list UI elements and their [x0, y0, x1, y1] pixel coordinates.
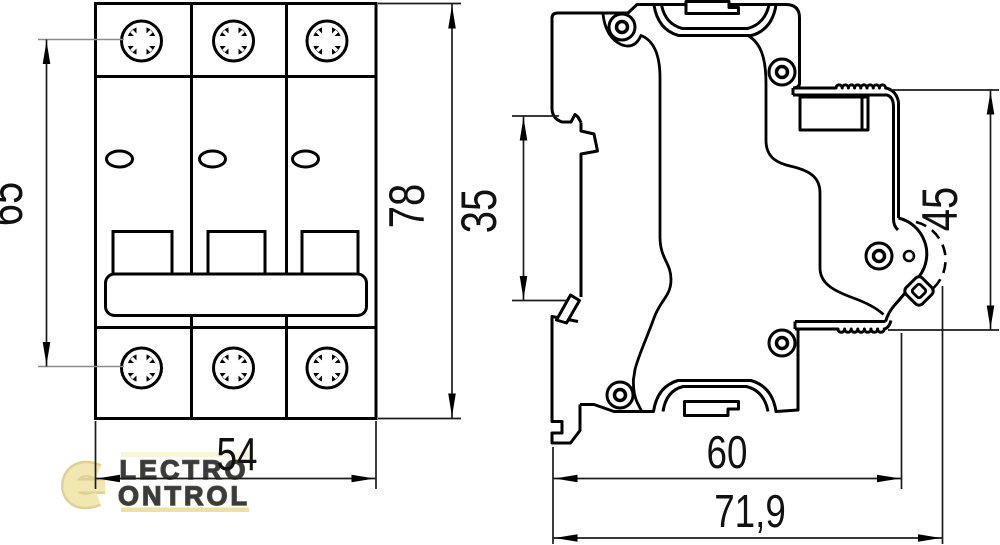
dimensional-drawing: LECTRO ONTROL 65 78 54 — [0, 0, 1000, 545]
toggle-handle — [208, 232, 265, 276]
logo-underline — [121, 508, 249, 513]
terminal-screw-icon — [307, 21, 347, 61]
terminal-screw-icon — [122, 21, 162, 61]
dim-label-35: 35 — [451, 189, 507, 233]
terminal-cavity-top — [800, 97, 868, 130]
dim-label-45: 45 — [912, 187, 968, 231]
dim-label-71-9: 71,9 — [714, 485, 786, 537]
toggle-handle — [113, 232, 172, 276]
case-rivet-icon — [769, 330, 795, 356]
toggle-handle — [302, 232, 358, 276]
case-rivet-icon — [769, 59, 795, 85]
handle-tie-bar — [106, 274, 367, 316]
terminal-screw-icon — [214, 348, 254, 388]
terminal-screw-icon — [122, 348, 162, 388]
dim-label-65: 65 — [0, 182, 33, 226]
logo-word-ontrol: ONTROL — [118, 481, 250, 511]
dim-label-78: 78 — [379, 184, 435, 228]
label-slot — [293, 151, 319, 167]
pivot-pin-icon — [904, 251, 914, 261]
case-rivet-icon — [609, 14, 635, 40]
label-slot — [107, 151, 133, 167]
front-view — [96, 4, 377, 419]
terminal-screw-icon — [214, 21, 254, 61]
dim-label-60: 60 — [707, 426, 748, 478]
dim-label-54: 54 — [217, 428, 258, 480]
terminal-screw-icon — [307, 348, 347, 388]
label-slot — [200, 151, 226, 167]
drawing-sheet: LECTRO ONTROL 65 78 54 — [0, 0, 1000, 545]
case-rivet-icon — [607, 382, 633, 408]
handle-pivot-rivet-icon — [866, 243, 892, 269]
